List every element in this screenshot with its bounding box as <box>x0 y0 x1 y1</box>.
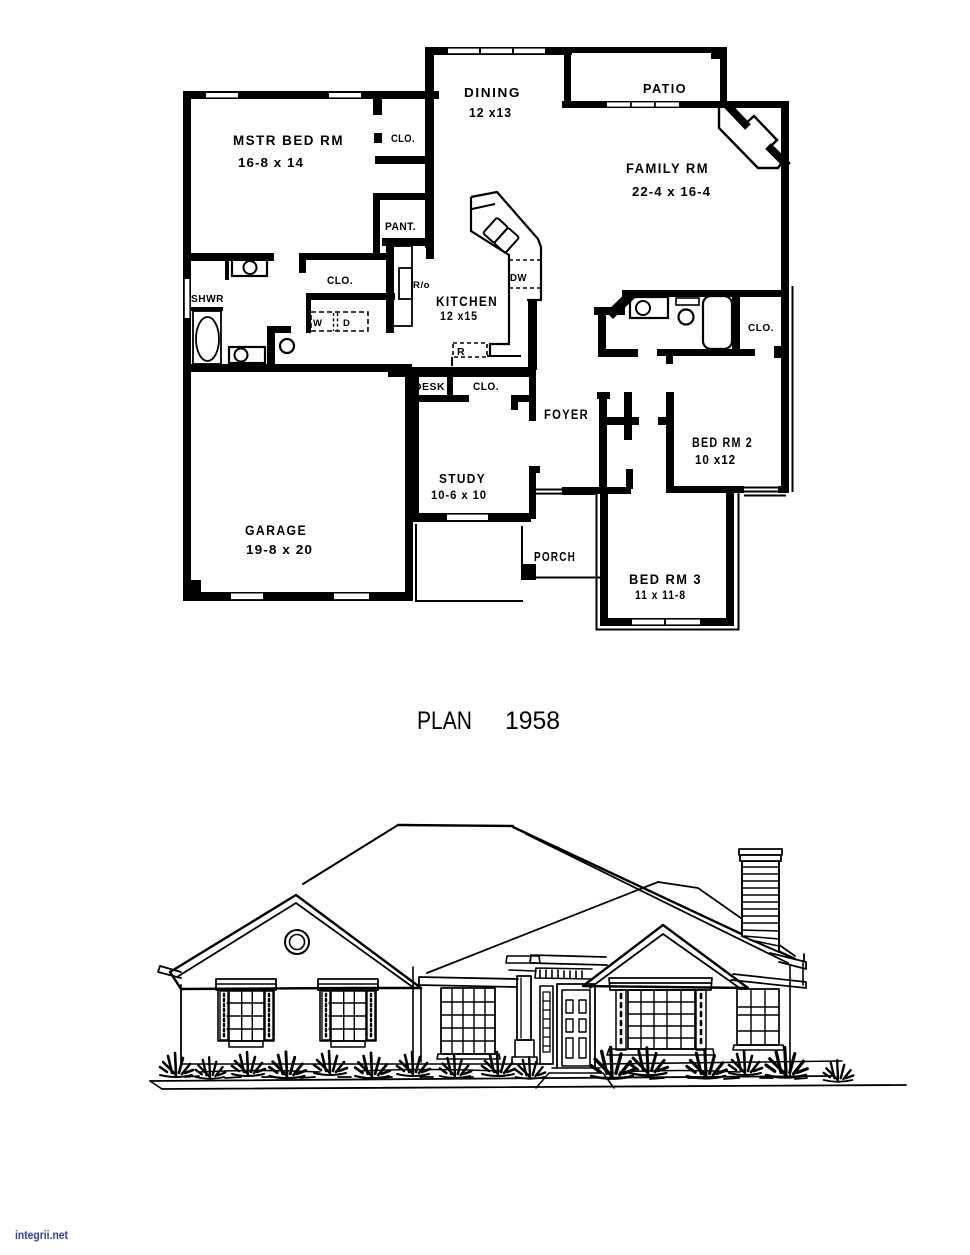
svg-text:PANT.: PANT. <box>385 221 416 233</box>
svg-text:SHWR: SHWR <box>191 293 224 305</box>
svg-text:KITCHEN: KITCHEN <box>436 294 498 309</box>
svg-text:DINING: DINING <box>464 85 521 100</box>
svg-text:DW: DW <box>510 272 527 284</box>
svg-text:22-4 x 16-4: 22-4 x 16-4 <box>632 184 711 199</box>
svg-text:CLO.: CLO. <box>327 275 353 287</box>
svg-text:PATIO: PATIO <box>643 81 687 96</box>
svg-text:PORCH: PORCH <box>534 549 576 564</box>
svg-text:W: W <box>313 318 322 329</box>
svg-text:10-6 x 10: 10-6 x 10 <box>431 488 487 502</box>
svg-text:D: D <box>343 318 350 329</box>
svg-text:CLO.: CLO. <box>748 322 774 334</box>
svg-text:CLO.: CLO. <box>391 133 415 145</box>
svg-text:integrii.net: integrii.net <box>15 1230 68 1242</box>
svg-text:CLO.: CLO. <box>473 381 499 393</box>
svg-text:MSTR BED RM: MSTR BED RM <box>233 133 344 148</box>
svg-text:FOYER: FOYER <box>544 407 589 422</box>
svg-text:16-8 x 14: 16-8 x 14 <box>238 155 304 170</box>
svg-text:1958: 1958 <box>505 707 560 735</box>
svg-text:PLAN: PLAN <box>417 707 472 735</box>
svg-text:FAMILY RM: FAMILY RM <box>626 161 709 176</box>
svg-text:R: R <box>457 346 465 358</box>
svg-text:19-8 x 20: 19-8 x 20 <box>246 542 313 557</box>
svg-text:BED RM 3: BED RM 3 <box>629 572 702 587</box>
svg-text:DESK: DESK <box>414 382 445 393</box>
svg-text:STUDY: STUDY <box>439 471 486 486</box>
svg-text:10 x12: 10 x12 <box>695 452 736 467</box>
svg-text:R/o: R/o <box>413 280 430 291</box>
svg-text:BED RM 2: BED RM 2 <box>692 435 753 450</box>
svg-text:GARAGE: GARAGE <box>245 523 307 538</box>
svg-text:12 x15: 12 x15 <box>440 309 478 323</box>
svg-text:12 x13: 12 x13 <box>469 105 512 120</box>
svg-text:11 x 11-8: 11 x 11-8 <box>635 588 686 602</box>
